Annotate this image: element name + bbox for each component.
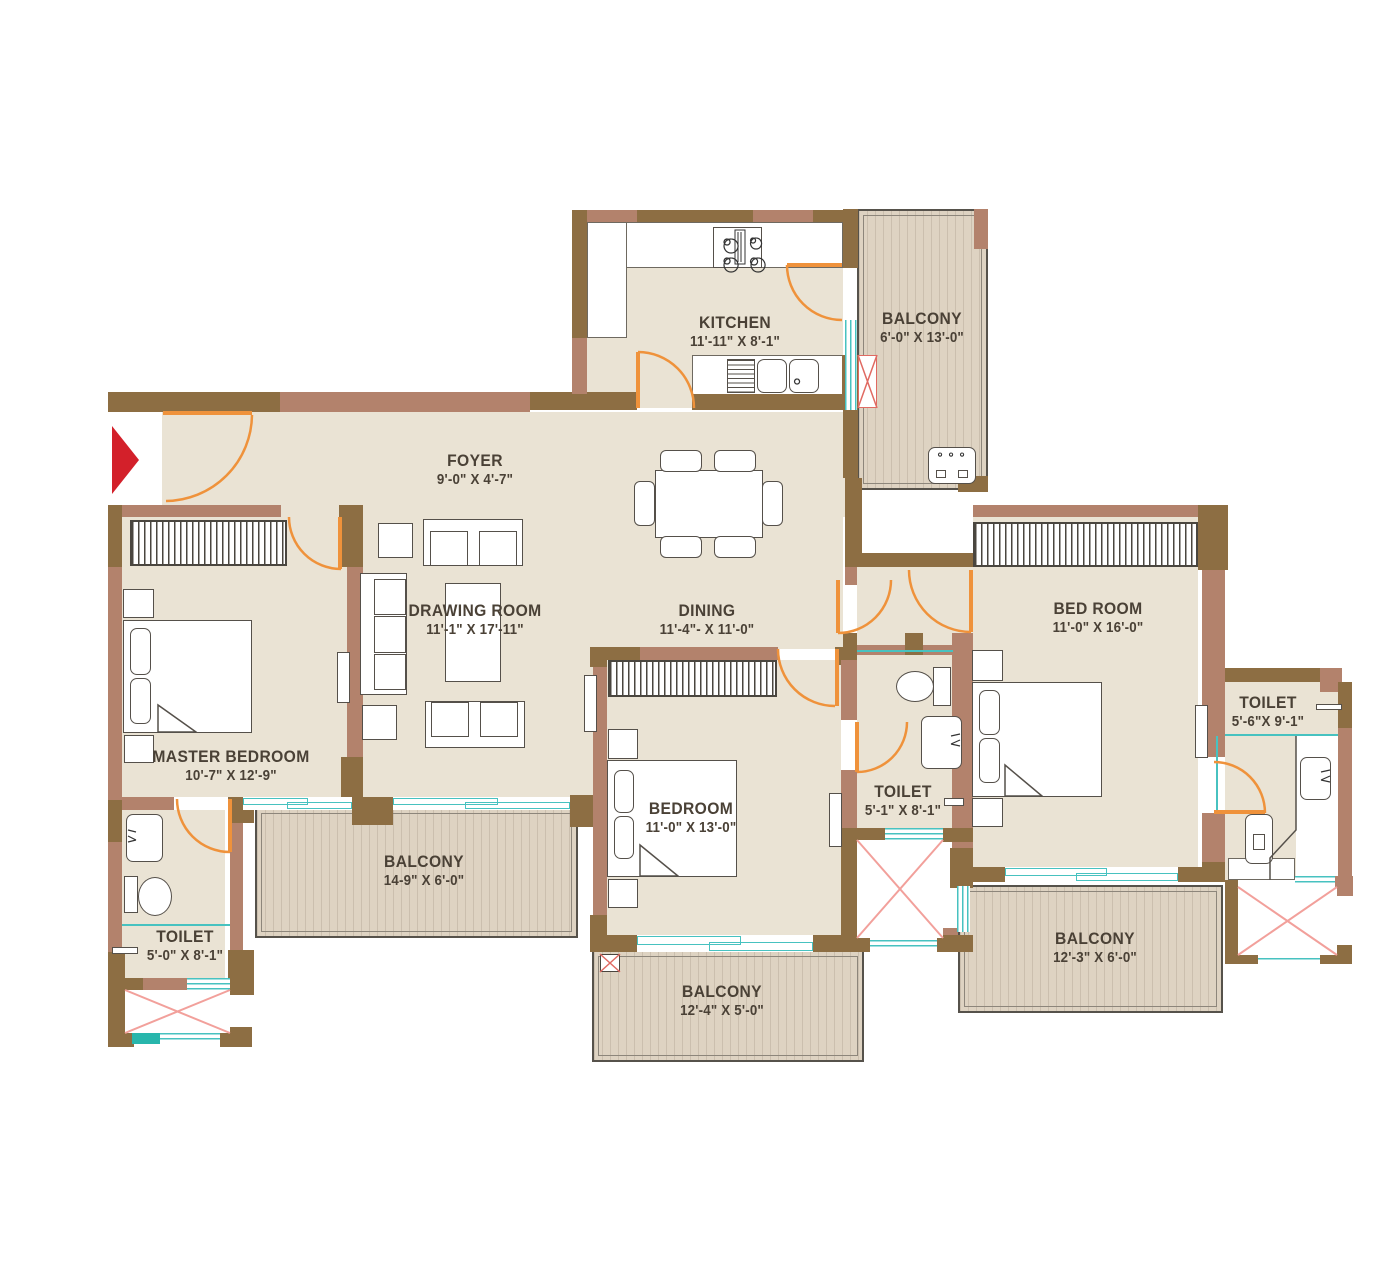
sofa-cushion bbox=[431, 702, 469, 737]
sofa-cushion bbox=[374, 616, 406, 653]
sofa-cushion bbox=[374, 654, 406, 690]
room-name: BALCONY bbox=[680, 981, 764, 1002]
room-label-drawing-balcony: BALCONY14-9" X 6'-0" bbox=[384, 851, 465, 890]
glass-line bbox=[1216, 736, 1218, 812]
glass-line bbox=[857, 650, 953, 652]
window bbox=[187, 978, 230, 990]
wall bbox=[108, 505, 122, 567]
wall bbox=[108, 392, 280, 412]
sink-drainboard bbox=[727, 359, 755, 393]
wall bbox=[108, 952, 125, 1030]
sliding-window bbox=[637, 935, 813, 952]
wall bbox=[640, 647, 778, 660]
towel-rail bbox=[112, 947, 138, 954]
room-label-drawing-room: DRAWING ROOM11'-1" X 17'-11" bbox=[408, 600, 541, 639]
wall bbox=[339, 505, 363, 567]
wardrobe bbox=[130, 520, 287, 566]
wall bbox=[943, 828, 973, 842]
duct-shaft bbox=[1238, 887, 1337, 955]
room-label-master-toilet: TOILET5'-0" X 8'-1" bbox=[147, 926, 223, 965]
room-dims: 11'-11" X 8'-1" bbox=[690, 333, 780, 351]
room-name: DINING bbox=[660, 600, 755, 621]
basin-foot bbox=[936, 470, 946, 478]
wall bbox=[122, 505, 281, 517]
wall bbox=[143, 978, 187, 990]
wall bbox=[637, 210, 753, 222]
door-leaf bbox=[228, 799, 232, 852]
window bbox=[1295, 876, 1335, 885]
door-leaf bbox=[163, 411, 252, 415]
wall bbox=[1198, 505, 1228, 570]
room-name: FOYER bbox=[437, 450, 513, 471]
door-leaf bbox=[836, 580, 840, 633]
dining-chair bbox=[634, 481, 655, 526]
wall bbox=[973, 505, 1198, 517]
window bbox=[845, 320, 857, 410]
wall bbox=[110, 978, 143, 990]
room-name: BALCONY bbox=[1053, 928, 1137, 949]
dining-chair bbox=[762, 481, 783, 526]
wall bbox=[841, 770, 857, 828]
window bbox=[957, 886, 970, 932]
tv-panel bbox=[1195, 705, 1208, 758]
room-name: TOILET bbox=[147, 926, 223, 947]
wall bbox=[108, 567, 122, 800]
nightstand bbox=[608, 729, 638, 759]
door-leaf bbox=[969, 570, 973, 632]
duct-shaft bbox=[125, 990, 230, 1033]
pillow bbox=[979, 738, 1000, 783]
duct-shaft bbox=[857, 840, 943, 938]
room-label-bedroom2-balcony: BALCONY12'-4" X 5'-0" bbox=[680, 981, 764, 1020]
wall bbox=[122, 797, 174, 810]
wall bbox=[108, 842, 122, 952]
tv-panel bbox=[829, 793, 842, 847]
pillow bbox=[614, 770, 634, 813]
wardrobe bbox=[608, 660, 777, 697]
wall bbox=[845, 567, 857, 585]
door-leaf bbox=[1214, 810, 1265, 814]
room-name: KITCHEN bbox=[690, 312, 780, 333]
nightstand bbox=[124, 735, 154, 763]
tv-panel bbox=[584, 675, 597, 732]
wall bbox=[228, 950, 254, 995]
basin-foot bbox=[958, 470, 968, 478]
wall bbox=[108, 800, 122, 842]
dining-chair bbox=[660, 536, 702, 558]
wall bbox=[1225, 668, 1320, 682]
wall bbox=[968, 867, 1005, 882]
room-label-bedroom3-balcony: BALCONY12'-3" X 6'-0" bbox=[1053, 928, 1137, 967]
wc-bowl bbox=[896, 671, 934, 702]
floor-plan: KITCHEN11'-11" X 8'-1" BALCONY6'-0" X 13… bbox=[0, 0, 1386, 1271]
sliding-window bbox=[393, 797, 570, 810]
wall bbox=[845, 553, 973, 567]
door-leaf bbox=[338, 517, 342, 569]
room-dims: 6'-0" X 13'-0" bbox=[880, 329, 964, 347]
door-leaf bbox=[835, 649, 839, 706]
wall bbox=[841, 660, 857, 720]
nightstand bbox=[972, 798, 1003, 827]
room-name: DRAWING ROOM bbox=[408, 600, 541, 621]
room-label-dining: DINING11'-4"- X 11'-0" bbox=[660, 600, 755, 639]
room-name: BALCONY bbox=[880, 308, 964, 329]
wc-tank bbox=[933, 667, 951, 706]
sofa-cushion bbox=[430, 531, 468, 566]
wall bbox=[843, 633, 857, 655]
room-dims: 11'-4"- X 11'-0" bbox=[660, 621, 755, 639]
room-dims: 14-9" X 6'-0" bbox=[384, 872, 465, 890]
room-name: BED ROOM bbox=[1053, 598, 1144, 619]
room-label-foyer: FOYER9'-0" X 4'-7" bbox=[437, 450, 513, 489]
towel-rail bbox=[944, 798, 964, 806]
room-label-toilet3: TOILET5'-6"X 9'-1" bbox=[1232, 692, 1304, 731]
room-dims: 11'-0" X 13'-0" bbox=[646, 819, 737, 837]
drain-box bbox=[600, 954, 620, 972]
wc-bowl bbox=[138, 877, 172, 916]
window bbox=[160, 1033, 220, 1043]
wall bbox=[352, 797, 393, 825]
room-dims: 5'-1" X 8'-1" bbox=[865, 802, 941, 820]
washbasin bbox=[928, 447, 976, 484]
sliding-window bbox=[1005, 867, 1178, 882]
room-dims: 9'-0" X 4'-7" bbox=[437, 471, 513, 489]
wc-flush bbox=[1253, 834, 1265, 850]
sliding-window bbox=[243, 797, 352, 810]
room-name: BALCONY bbox=[384, 851, 465, 872]
wall bbox=[1335, 876, 1353, 896]
wall bbox=[843, 408, 858, 478]
dining-chair bbox=[714, 536, 756, 558]
washbasin bbox=[1300, 757, 1331, 800]
room-label-kitchen: KITCHEN11'-11" X 8'-1" bbox=[690, 312, 780, 351]
wall bbox=[280, 392, 530, 412]
room-dims: 11'-1" X 17'-11" bbox=[408, 621, 541, 639]
window bbox=[885, 828, 943, 840]
wall bbox=[974, 209, 988, 249]
wall bbox=[607, 647, 640, 660]
side-table bbox=[362, 705, 397, 740]
room-label-bedroom2: BEDROOM11'-0" X 13'-0" bbox=[646, 798, 737, 837]
wall bbox=[592, 935, 637, 952]
room-dims: 5'-0" X 8'-1" bbox=[147, 947, 223, 965]
stove bbox=[713, 227, 762, 268]
vent-panel bbox=[132, 1033, 160, 1044]
room-name: BEDROOM bbox=[646, 798, 737, 819]
room-dims: 12'-4" X 5'-0" bbox=[680, 1002, 764, 1020]
tv-panel bbox=[337, 652, 350, 703]
wall bbox=[572, 210, 587, 338]
wall bbox=[1178, 867, 1225, 882]
washbasin bbox=[126, 814, 163, 862]
wall bbox=[1338, 728, 1352, 878]
nightstand bbox=[608, 879, 638, 908]
washbasin bbox=[921, 716, 962, 769]
pillow bbox=[130, 678, 151, 724]
room-dims: 10'-7" X 12'-9" bbox=[152, 767, 309, 785]
sink-basin bbox=[789, 359, 819, 393]
pillow bbox=[130, 628, 151, 675]
duct-shaft-small bbox=[858, 355, 877, 408]
wall bbox=[843, 209, 858, 243]
dining-table bbox=[655, 470, 763, 538]
kitchen-counter-left bbox=[587, 222, 627, 338]
nightstand bbox=[123, 589, 154, 618]
pillow bbox=[614, 816, 634, 859]
wall bbox=[587, 210, 637, 222]
sofa-cushion bbox=[480, 702, 518, 737]
room-name: MASTER BEDROOM bbox=[152, 746, 309, 767]
sink-basin bbox=[757, 359, 787, 393]
wall bbox=[841, 828, 857, 952]
wall bbox=[1202, 813, 1225, 867]
door-leaf bbox=[636, 352, 640, 408]
sofa-cushion bbox=[374, 579, 406, 615]
room-label-kitchen-balcony: BALCONY6'-0" X 13'-0" bbox=[880, 308, 964, 347]
wall bbox=[590, 647, 607, 667]
window bbox=[870, 940, 937, 950]
room-name: TOILET bbox=[1232, 692, 1304, 713]
glass-line bbox=[1225, 734, 1338, 736]
wall bbox=[570, 795, 593, 827]
room-dims: 11'-0" X 16'-0" bbox=[1053, 619, 1144, 637]
room-label-bedroom3: BED ROOM11'-0" X 16'-0" bbox=[1053, 598, 1144, 637]
sofa-cushion bbox=[479, 531, 517, 566]
nightstand bbox=[972, 650, 1003, 681]
room-dims: 12'-3" X 6'-0" bbox=[1053, 949, 1137, 967]
entry-arrow-icon bbox=[112, 426, 139, 494]
wall bbox=[572, 338, 587, 394]
room-name: TOILET bbox=[865, 781, 941, 802]
door-leaf bbox=[855, 722, 859, 772]
towel-rail bbox=[1316, 704, 1342, 710]
wall bbox=[530, 392, 637, 410]
wall bbox=[845, 828, 885, 840]
door-leaf bbox=[787, 263, 842, 267]
wall bbox=[753, 210, 813, 222]
pillow bbox=[979, 690, 1000, 735]
dining-chair bbox=[714, 450, 756, 472]
side-table bbox=[378, 523, 413, 558]
wc-tank bbox=[124, 876, 138, 913]
wardrobe bbox=[973, 522, 1198, 567]
wall bbox=[692, 394, 843, 410]
room-label-master-bedroom: MASTER BEDROOM10'-7" X 12'-9" bbox=[152, 746, 309, 785]
dining-chair bbox=[660, 450, 702, 472]
room-dims: 5'-6"X 9'-1" bbox=[1232, 713, 1304, 731]
room-label-toilet2: TOILET5'-1" X 8'-1" bbox=[865, 781, 941, 820]
